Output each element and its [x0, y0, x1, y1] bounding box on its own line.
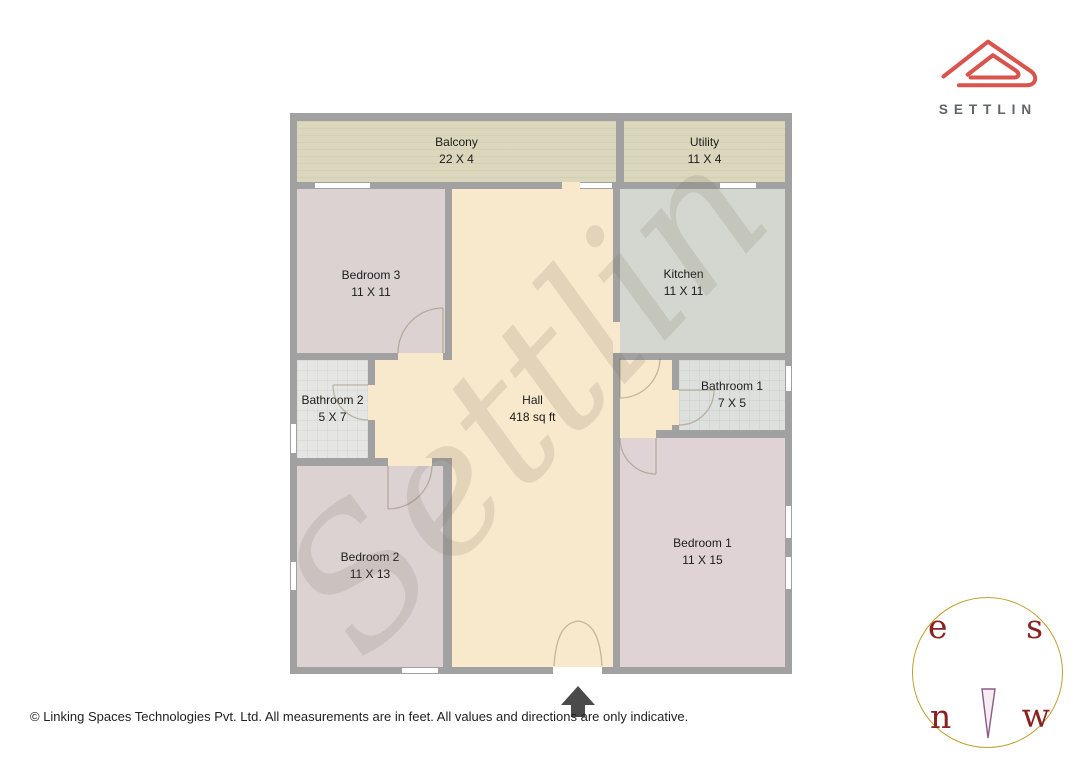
compass-needle	[912, 597, 1064, 749]
window	[786, 366, 791, 391]
door-opening-bathroom-1	[672, 390, 679, 425]
door-opening-balcony	[562, 182, 580, 189]
door-opening-kitchen	[613, 322, 620, 353]
brand-logo: SETTLIN	[928, 32, 1048, 117]
door-opening-bedroom-1	[620, 430, 656, 438]
main-entrance-opening	[553, 667, 602, 674]
door-arc	[388, 465, 432, 509]
window	[402, 668, 438, 673]
page: Balcony 22 X 4 Utility 11 X 4 Bedroom 3 …	[0, 0, 1080, 764]
window	[315, 183, 370, 188]
door-arc	[333, 385, 368, 420]
door-arc	[679, 390, 714, 425]
door-arcs-layer	[290, 113, 792, 674]
door-opening-bedroom-3	[398, 353, 443, 360]
window	[291, 562, 296, 590]
brand-name: SETTLIN	[928, 102, 1048, 117]
door-opening-bedroom-2	[388, 458, 432, 466]
window	[580, 183, 612, 188]
door-opening-bathroom-2	[368, 385, 375, 420]
window	[720, 183, 756, 188]
house-roof-icon	[936, 32, 1040, 92]
floor-plan: Balcony 22 X 4 Utility 11 X 4 Bedroom 3 …	[290, 113, 792, 674]
compass: e s n w	[912, 597, 1064, 749]
window	[291, 424, 296, 453]
entrance-arch	[554, 621, 602, 666]
compass-needle-shape	[982, 689, 995, 738]
window	[786, 506, 791, 538]
copyright-text: © Linking Spaces Technologies Pvt. Ltd. …	[30, 709, 688, 724]
entrance-arrow-icon	[561, 686, 595, 705]
door-arc	[620, 358, 660, 398]
window	[786, 557, 791, 589]
door-arc	[398, 308, 443, 353]
door-arc	[620, 438, 656, 474]
